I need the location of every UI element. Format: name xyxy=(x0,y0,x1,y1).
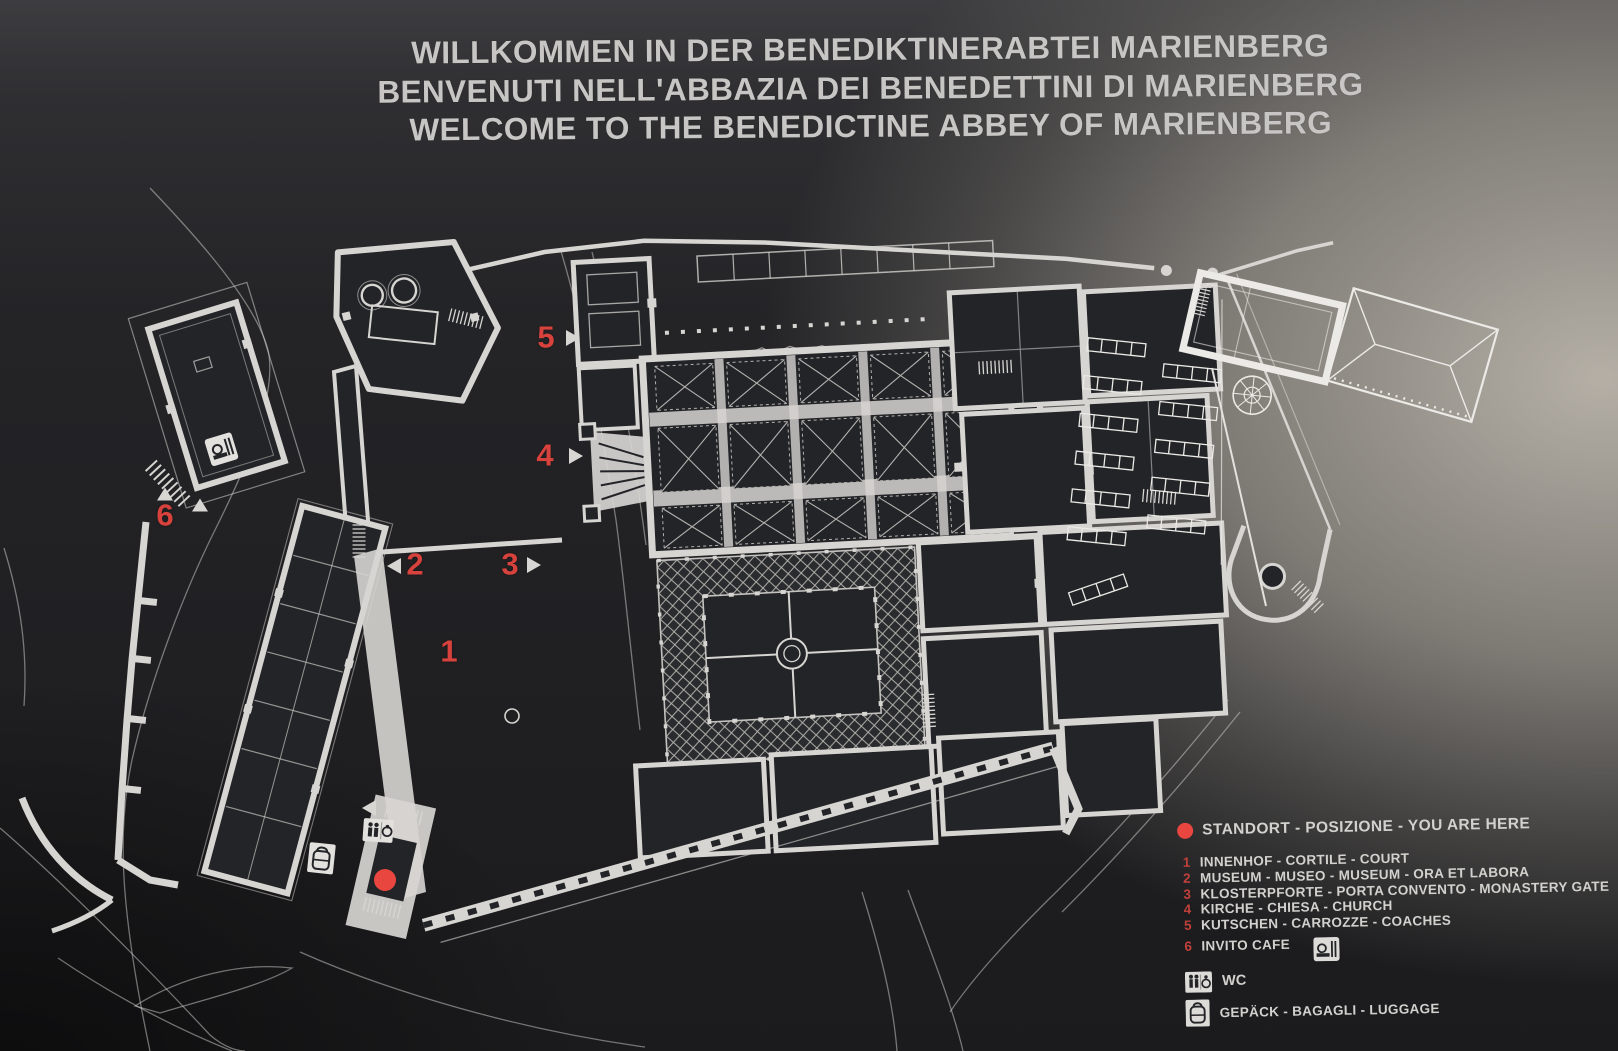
marker-4-pointer-icon xyxy=(569,448,583,464)
sign-title: WILLKOMMEN IN DER BENEDIKTINERABTEI MARI… xyxy=(338,26,1403,150)
legend-items: 1 INNENHOF - CORTILE - COURT 2 MUSEUM - … xyxy=(1177,848,1611,959)
cafe-icon xyxy=(1313,937,1339,961)
map-marker-5: 5 xyxy=(537,322,554,353)
map-marker-1: 1 xyxy=(440,636,457,667)
marker-2-pointer-icon xyxy=(387,558,401,574)
legend-number: 5 xyxy=(1184,919,1194,933)
map-marker-4: 4 xyxy=(536,440,553,471)
marker-5-pointer-icon xyxy=(566,330,580,346)
cloister xyxy=(657,547,925,764)
wc-icon xyxy=(1185,971,1212,993)
legend-number: 1 xyxy=(1183,856,1193,870)
map-wc-icon xyxy=(362,818,394,843)
cafe-building xyxy=(102,282,305,516)
luggage-label: GEPÄCK - BAGAGLI - LUGGAGE xyxy=(1220,1001,1440,1020)
map-marker-6: 6 xyxy=(156,500,173,531)
legend-number: 6 xyxy=(1184,940,1194,954)
west-gate xyxy=(346,794,437,939)
abbey-welcome-sign: WILLKOMMEN IN DER BENEDIKTINERABTEI MARI… xyxy=(0,0,1618,1051)
you-are-here-dot xyxy=(374,869,396,891)
map-marker-3: 3 xyxy=(501,549,518,580)
map-marker-2: 2 xyxy=(406,549,423,580)
gate-pointer-icon xyxy=(362,800,376,816)
wc-label: WC xyxy=(1222,973,1246,989)
east-bastion xyxy=(1213,269,1345,622)
legend-number: 3 xyxy=(1183,887,1193,901)
legend-wc-row: WC xyxy=(1179,964,1611,993)
legend-number: 4 xyxy=(1184,903,1194,917)
far-right-building xyxy=(1327,288,1498,422)
map-luggage-icon xyxy=(307,842,336,875)
marker-6-pointer-icon xyxy=(157,488,173,501)
legend: STANDORT - POSIZIONE - YOU ARE HERE 1 IN… xyxy=(1176,814,1612,1027)
marker-3-pointer-icon xyxy=(527,557,541,573)
you-are-here-legend-dot-icon xyxy=(1177,823,1193,839)
legend-number: 2 xyxy=(1183,871,1193,885)
backpack-icon xyxy=(1185,999,1210,1026)
coach-house xyxy=(573,258,659,364)
legend-label: INVITO CAFE xyxy=(1201,938,1290,954)
marker-6-pointer2-icon xyxy=(192,499,208,512)
